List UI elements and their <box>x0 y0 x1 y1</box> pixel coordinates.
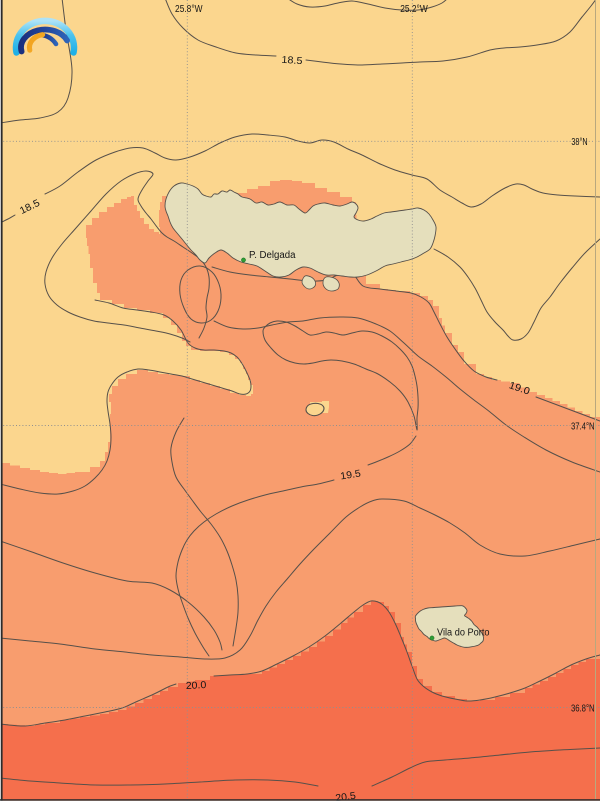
svg-text:37.4°N: 37.4°N <box>571 422 595 433</box>
svg-text:25.8°W: 25.8°W <box>175 4 203 15</box>
svg-text:P. Delgada: P. Delgada <box>249 250 296 261</box>
svg-text:20.0: 20.0 <box>186 680 208 692</box>
svg-text:25.2°W: 25.2°W <box>400 4 428 15</box>
svg-text:18.5: 18.5 <box>281 55 303 67</box>
svg-text:Vila do Porto: Vila do Porto <box>437 628 490 639</box>
svg-text:38°N: 38°N <box>571 137 587 148</box>
svg-text:36.8°N: 36.8°N <box>571 704 595 715</box>
